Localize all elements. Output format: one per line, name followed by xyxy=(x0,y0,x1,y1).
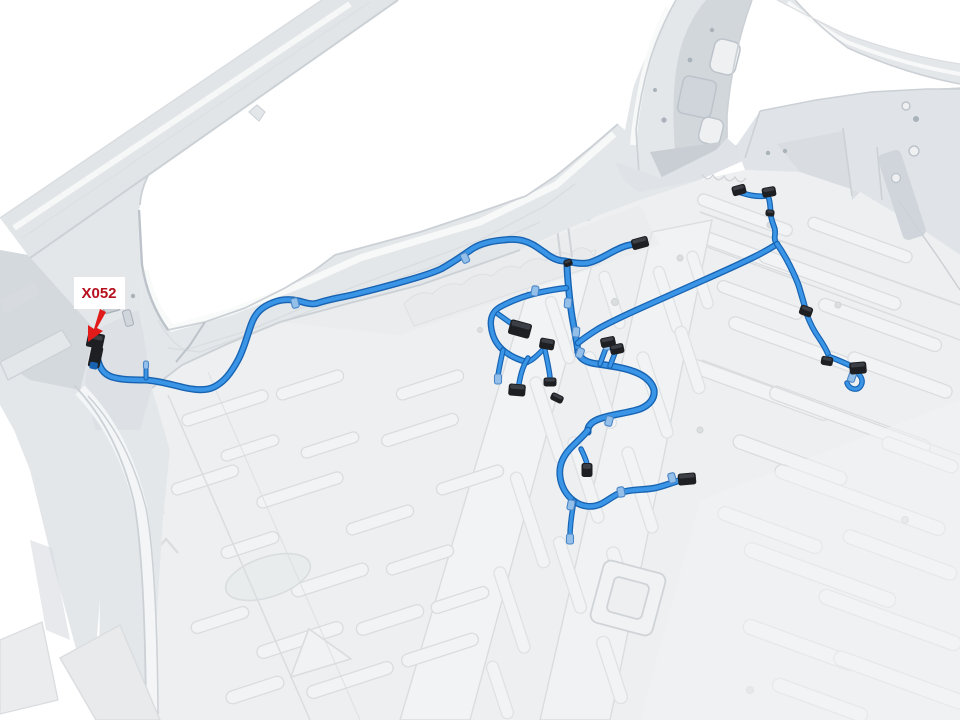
svg-text:X052: X052 xyxy=(81,285,116,302)
